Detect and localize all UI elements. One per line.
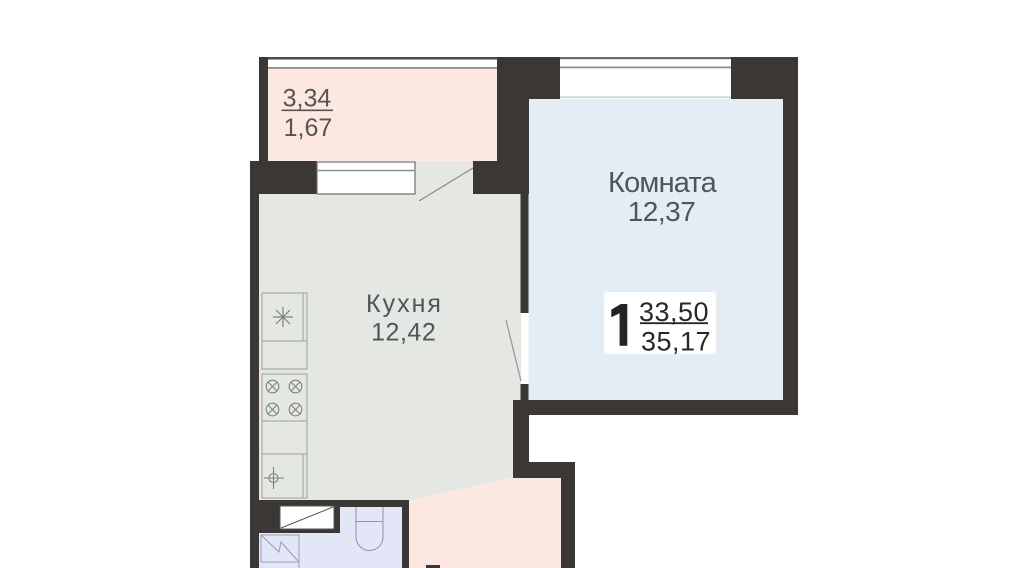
svg-text:35,17: 35,17 — [641, 327, 711, 357]
svg-text:3,34: 3,34 — [283, 85, 332, 113]
svg-text:1,67: 1,67 — [284, 114, 333, 142]
svg-text:Комната: Комната — [608, 167, 718, 199]
svg-text:12,42: 12,42 — [371, 319, 436, 347]
svg-text:12,37: 12,37 — [628, 196, 696, 227]
svg-text:Кухня: Кухня — [366, 290, 443, 318]
